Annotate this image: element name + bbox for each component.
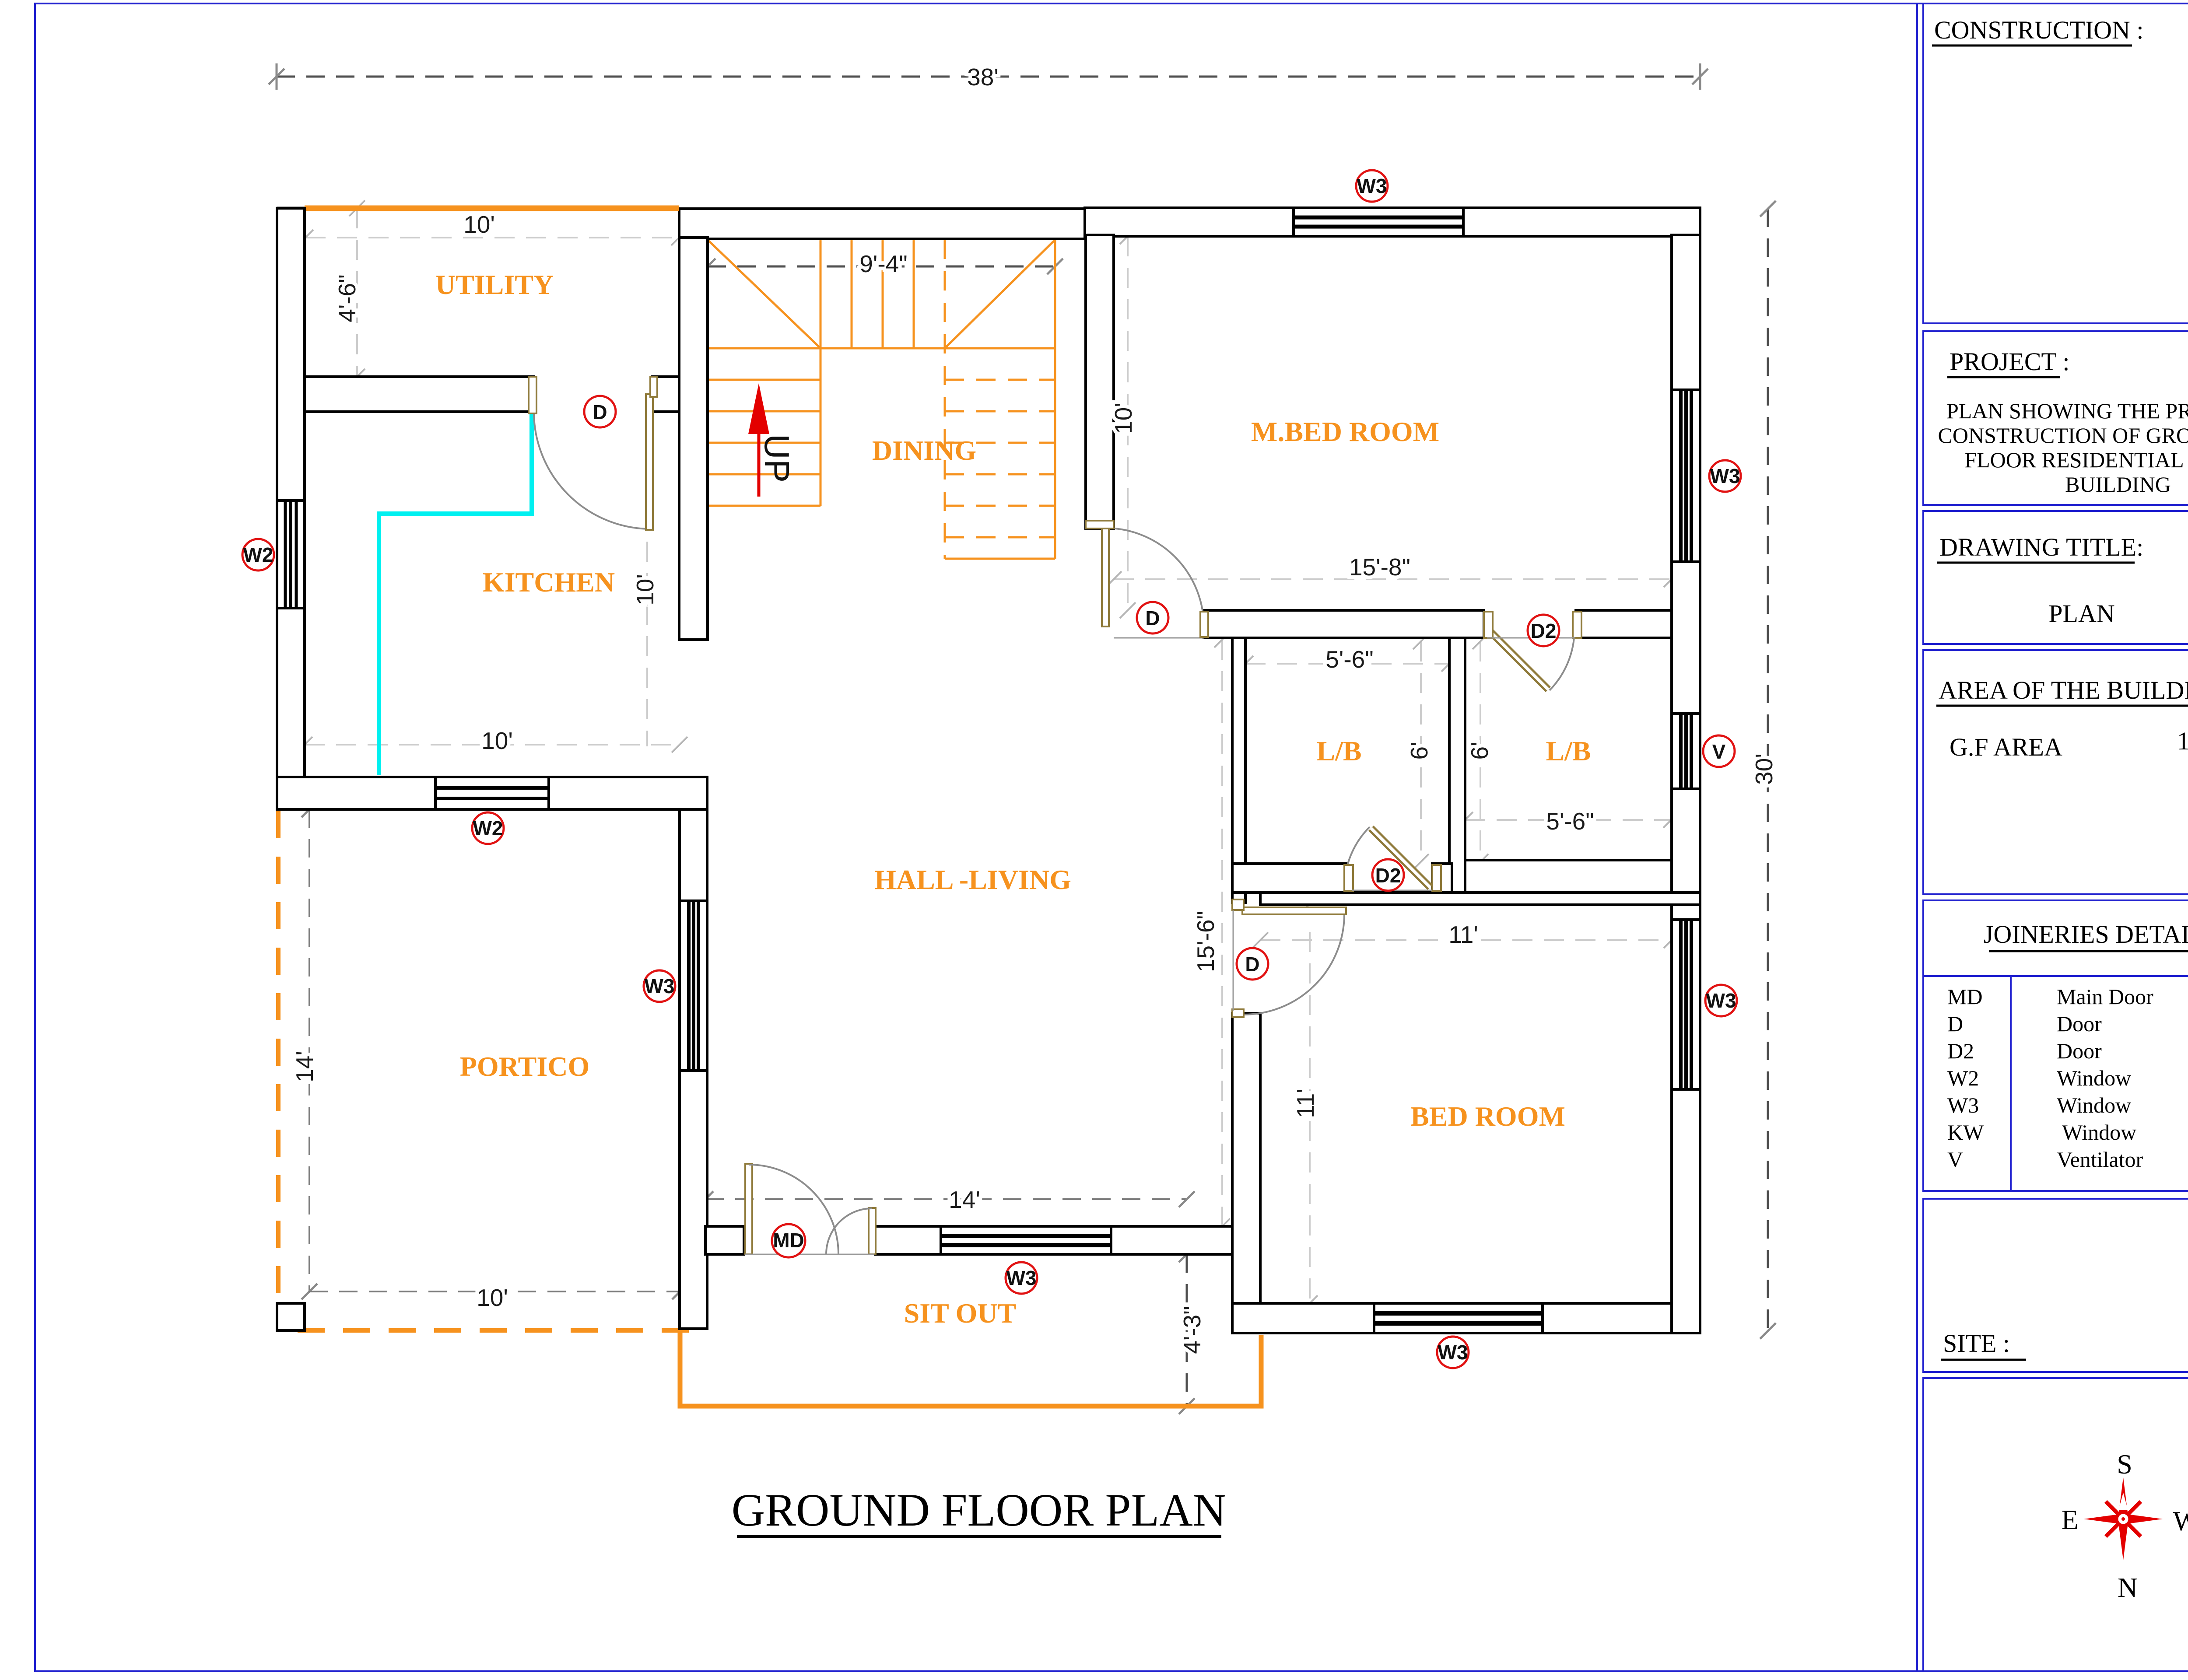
svg-text:Main Door: Main Door (2057, 984, 2153, 1009)
svg-text:W2: W2 (243, 543, 273, 566)
svg-text:KITCHEN: KITCHEN (483, 567, 615, 598)
svg-text:MD: MD (1947, 984, 1983, 1009)
svg-text:SITE :: SITE : (1943, 1329, 2010, 1358)
svg-text:DINING: DINING (872, 435, 976, 466)
svg-text:D: D (1947, 1011, 1963, 1036)
svg-text:PORTICO: PORTICO (460, 1051, 589, 1082)
svg-text:10': 10' (477, 1284, 508, 1311)
svg-text:15'-6": 15'-6" (1192, 911, 1219, 972)
svg-text:KW: KW (1947, 1120, 1984, 1144)
svg-text:11': 11' (1448, 921, 1478, 948)
svg-text:W3: W3 (1947, 1093, 1979, 1117)
svg-text:Ventilator: Ventilator (2057, 1147, 2143, 1172)
svg-text:DRAWING TITLE:: DRAWING TITLE: (1939, 533, 2143, 561)
svg-text:6': 6' (1466, 742, 1493, 759)
svg-text:W2: W2 (473, 817, 503, 840)
svg-text:G.F AREA: G.F AREA (1950, 733, 2062, 761)
svg-text:PLAN: PLAN (2048, 599, 2114, 628)
svg-text:GROUND FLOOR PLAN: GROUND FLOOR PLAN (732, 1484, 1227, 1536)
svg-text:4'-6": 4'-6" (333, 274, 361, 322)
svg-text:D2: D2 (1531, 619, 1557, 642)
svg-text:D2: D2 (1375, 864, 1401, 887)
svg-text:UP: UP (757, 434, 796, 483)
svg-text:14': 14' (949, 1186, 980, 1213)
svg-text:L/B: L/B (1316, 735, 1361, 766)
svg-text:9'-4": 9'-4" (859, 250, 908, 277)
svg-text:W3: W3 (1438, 1341, 1468, 1364)
svg-text:D: D (593, 401, 607, 423)
svg-text:HALL -LIVING: HALL -LIVING (874, 864, 1071, 895)
svg-text:V: V (1947, 1147, 1963, 1172)
svg-text:D: D (1245, 953, 1259, 976)
svg-text:CONSTRUCTION :: CONSTRUCTION : (1934, 16, 2144, 44)
svg-text:Door: Door (2057, 1039, 2102, 1063)
svg-text:SIT OUT: SIT OUT (904, 1298, 1017, 1329)
svg-text:S: S (2117, 1449, 2132, 1480)
svg-text:BED ROOM: BED ROOM (1410, 1101, 1565, 1132)
svg-text:MD: MD (773, 1229, 804, 1252)
svg-text:W: W (2173, 1505, 2188, 1536)
svg-text:FLOOR RESIDENTIAL: FLOOR RESIDENTIAL (1964, 448, 2184, 472)
svg-text:1171 SQ.FT: 1171 SQ.FT (2177, 727, 2188, 755)
svg-text:Window: Window (2057, 1093, 2131, 1117)
svg-text:AREA OF THE BUILDING: AREA OF THE BUILDING (1939, 676, 2188, 704)
svg-text:W3: W3 (1357, 175, 1387, 197)
svg-text:38': 38' (967, 63, 999, 91)
svg-text:W2: W2 (1947, 1066, 1979, 1090)
svg-text:W3: W3 (1706, 989, 1736, 1012)
svg-text:M.BED ROOM: M.BED ROOM (1251, 416, 1439, 447)
svg-text:10': 10' (463, 211, 495, 238)
svg-text:W3: W3 (1710, 465, 1740, 487)
svg-text:5'-6": 5'-6" (1546, 808, 1594, 835)
svg-text:10': 10' (1110, 402, 1137, 434)
svg-text:BUILDING: BUILDING (2065, 472, 2171, 497)
svg-text:Door: Door (2057, 1011, 2102, 1036)
svg-text:10': 10' (631, 574, 659, 605)
svg-text:15'-8": 15'-8" (1349, 553, 1410, 581)
svg-text:30': 30' (1750, 753, 1778, 785)
svg-text:4'-3": 4'-3" (1178, 1306, 1206, 1354)
svg-text:5'-6": 5'-6" (1325, 646, 1374, 673)
svg-text:PLAN SHOWING THE PROPOSED: PLAN SHOWING THE PROPOSED (1946, 399, 2188, 423)
svg-text:V: V (1712, 740, 1726, 763)
svg-text:UTILITY: UTILITY (435, 269, 554, 300)
svg-text:JOINERIES DETAILS: JOINERIES DETAILS (1984, 920, 2188, 948)
svg-text:PROJECT :: PROJECT : (1950, 347, 2070, 376)
svg-text:6': 6' (1406, 742, 1433, 759)
svg-text:W3: W3 (1006, 1267, 1037, 1289)
svg-text:14': 14' (291, 1051, 318, 1082)
svg-text:10': 10' (481, 727, 513, 754)
svg-text:E: E (2061, 1504, 2078, 1535)
svg-text:L/B: L/B (1546, 735, 1591, 766)
svg-text:Window: Window (2057, 1066, 2131, 1090)
svg-text:W3: W3 (645, 975, 675, 997)
svg-text:11': 11' (1292, 1088, 1319, 1118)
svg-text:D: D (1145, 607, 1160, 630)
svg-text:Window: Window (2062, 1120, 2136, 1144)
svg-text:CONSTRUCTION OF GROUND: CONSTRUCTION OF GROUND (1938, 423, 2188, 448)
svg-text:N: N (2118, 1572, 2138, 1603)
svg-text:D2: D2 (1947, 1039, 1974, 1063)
